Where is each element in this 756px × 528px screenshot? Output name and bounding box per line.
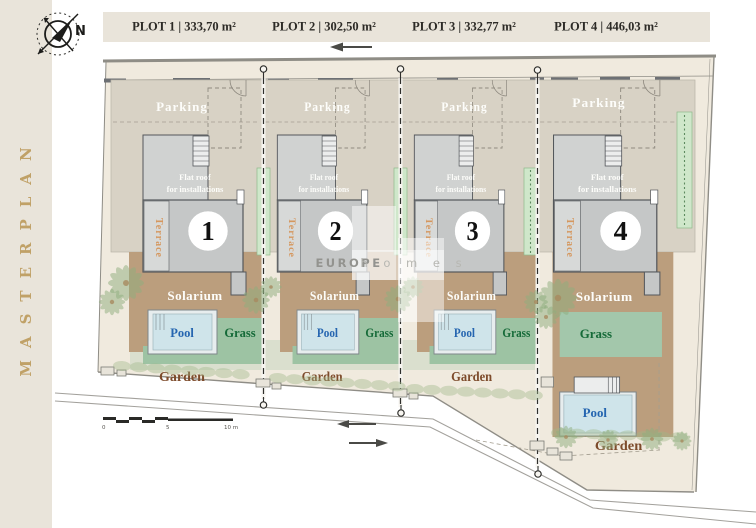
direction-arrow-top (330, 43, 372, 52)
site-plan: Flat roof for installations Terrace 1 Pa… (0, 0, 756, 528)
pool-label: Pool (317, 325, 339, 340)
watermark-brand-suffix: h o m e s (360, 256, 467, 270)
plot-number: 3 (466, 216, 478, 247)
flat-roof-label: Flat roof (591, 172, 624, 182)
grass-label: Grass (365, 325, 393, 340)
grass-label: Grass (224, 326, 255, 340)
flat-roof-label-2: for installations (167, 184, 224, 194)
solarium-label: Solarium (310, 288, 360, 303)
garden-label: Garden (451, 368, 493, 384)
flat-roof-label-2: for installations (578, 184, 637, 194)
compass-north-label: N (75, 24, 86, 39)
scale-bar-five: 5 (166, 425, 170, 431)
pool-label: Pool (170, 326, 194, 340)
solarium-label: Solarium (576, 289, 633, 304)
terrace-label: Terrace (153, 218, 164, 258)
parking-label: Parking (156, 99, 208, 114)
flat-roof-label-2: for installations (436, 185, 487, 194)
compass: N (37, 13, 86, 55)
grass-label: Grass (502, 325, 530, 340)
solarium-label: Solarium (447, 288, 497, 303)
direction-arrow-road-right (349, 439, 388, 447)
plot-number: 2 (329, 216, 341, 247)
flat-roof-label: Flat roof (179, 172, 211, 182)
terrace-label: Terrace (564, 218, 575, 258)
flat-roof-label-2: for installations (299, 185, 350, 194)
solarium-label: Solarium (167, 288, 222, 303)
parking-label: Parking (441, 99, 487, 114)
plot-3: Flat roof for installations Terrace 3 Pa… (401, 80, 537, 384)
parking-label: Parking (304, 99, 350, 114)
flat-roof-label: Flat roof (447, 173, 476, 182)
grass-label: Grass (580, 327, 612, 341)
scale-bar: 0 5 10 m (102, 417, 238, 431)
scale-bar-ten: 10 m (224, 425, 238, 431)
parking-label: Parking (572, 95, 625, 110)
pool-label: Pool (454, 325, 476, 340)
masterplan-page: MASTERPLAN PLOT 1 | 333,70 m² PLOT 2 | 3… (0, 0, 756, 528)
scale-bar-zero: 0 (102, 425, 106, 431)
plot-number: 4 (614, 216, 628, 246)
terrace-label: Terrace (286, 218, 295, 258)
plot-number: 1 (201, 216, 215, 246)
plot-4: Flat roof for installations Terrace 4 Pa… (538, 80, 695, 454)
flat-roof-label: Flat roof (310, 173, 339, 182)
plot-1: Flat roof for installations Terrace 1 Pa… (111, 80, 263, 385)
pool-label: Pool (583, 406, 608, 420)
